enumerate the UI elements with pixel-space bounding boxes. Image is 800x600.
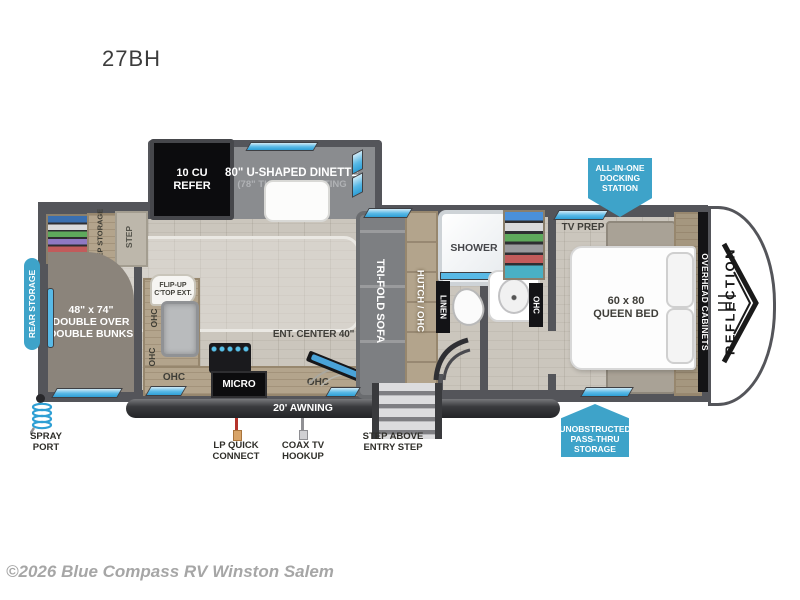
window-top-sofa: [363, 208, 413, 218]
wall-bedroom-stub: [548, 374, 556, 392]
window-bottom-kitchen: [145, 386, 187, 396]
window-bottom-bedroom: [580, 387, 634, 397]
bunks-label: 48" x 74" DOUBLE OVER DOUBLE BUNKS: [49, 304, 134, 340]
awning-label: 20' AWNING: [238, 402, 368, 414]
double-bunks: 48" x 74" DOUBLE OVER DOUBLE BUNKS: [48, 252, 134, 392]
bath-sink: [498, 278, 530, 314]
rear-storage-label: REAR STORAGE: [27, 270, 37, 338]
floorplan-image: 27BH 10 CU REFER 80" U-SHAPED DINETTE (7…: [0, 0, 800, 600]
micro-label: MICRO: [222, 379, 255, 390]
awning-tube: 20' AWNING: [126, 399, 560, 418]
microwave: MICRO: [211, 371, 267, 398]
ohc-kitchen-2: OHC: [147, 348, 157, 367]
stove-cooktop: [209, 343, 251, 373]
rear-wall-window: [47, 288, 54, 348]
shower-label: SHOWER: [450, 242, 497, 254]
sofa-label: TRI-FOLD SOFA: [374, 259, 386, 343]
window-slide-top: [245, 142, 318, 151]
wall-bunkroom: [134, 258, 142, 392]
wardrobe-hangers: [503, 210, 545, 280]
entry-step-label: STEP ABOVE ENTRY STEP: [350, 432, 436, 453]
refer-label: 10 CU REFER: [173, 167, 210, 192]
bath-door: [428, 330, 472, 382]
window-bottom-counter: [325, 387, 361, 397]
brand-label: REFLECTION: [723, 247, 738, 355]
lp-quick-connect-label: LP QUICK CONNECT: [198, 441, 274, 462]
front-cap-graphics: [712, 208, 768, 398]
kitchen-sink: [161, 301, 199, 357]
coax-connector-icon: [299, 430, 308, 440]
window-bottom-bunk: [51, 388, 123, 398]
bed-label: 60 x 80 QUEEN BED: [593, 295, 672, 320]
dinette-table: [264, 180, 330, 222]
spray-port-label: SPRAY PORT: [16, 432, 76, 453]
bath-ohc-label: OHC: [532, 296, 541, 314]
window-top-bedroom: [553, 210, 609, 220]
step-label: STEP: [124, 226, 134, 248]
pass-thru-badge: UNOBSTRUCTED PASS-THRU STORAGE: [561, 404, 629, 457]
flip-up-label: FLIP-UP C'TOP EXT.: [154, 282, 192, 298]
wall-bedroom: [548, 209, 556, 331]
hutch-label: HUTCH / OHC: [415, 270, 426, 332]
linen-label: LINEN: [439, 295, 448, 319]
coax-hookup-label: COAX TV HOOKUP: [268, 441, 338, 462]
model-number: 27BH: [102, 46, 161, 72]
pillow-bottom: [666, 308, 694, 364]
wall-toilet-divider: [480, 276, 488, 392]
watermark: ©2026 Blue Compass RV Winston Salem: [6, 562, 334, 582]
tv-prep-label: TV PREP: [556, 222, 610, 233]
pillow-top: [666, 252, 694, 308]
ohc-kitchen-1: OHC: [149, 309, 159, 328]
ohc-bottom-left: OHC: [150, 372, 198, 383]
dinette-line1: 80" U-SHAPED DINETTE: [222, 167, 362, 180]
